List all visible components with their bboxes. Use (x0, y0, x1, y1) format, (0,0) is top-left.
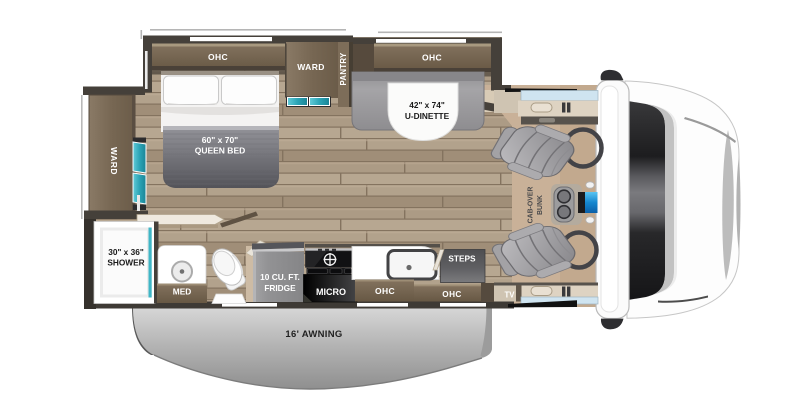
svg-text:OHC: OHC (375, 286, 395, 296)
svg-text:MICRO: MICRO (316, 287, 346, 297)
svg-text:MED: MED (173, 287, 191, 297)
svg-text:30" x 36": 30" x 36" (108, 247, 144, 257)
svg-text:PANTRY: PANTRY (339, 52, 348, 85)
svg-text:CAB-OVER: CAB-OVER (528, 187, 535, 224)
svg-text:OHC: OHC (208, 52, 228, 62)
svg-text:FRIDGE: FRIDGE (264, 283, 296, 293)
svg-text:STEPS: STEPS (448, 254, 476, 264)
svg-text:16' AWNING: 16' AWNING (285, 329, 342, 340)
svg-text:BUNK: BUNK (537, 195, 544, 215)
svg-text:OHC: OHC (442, 290, 461, 299)
svg-text:U-DINETTE: U-DINETTE (405, 111, 450, 121)
svg-text:10 CU. FT.: 10 CU. FT. (260, 272, 300, 282)
svg-text:WARD: WARD (109, 147, 119, 175)
svg-text:42" x 74": 42" x 74" (409, 100, 445, 110)
svg-text:TV: TV (505, 291, 516, 300)
svg-text:WARD: WARD (297, 62, 325, 72)
svg-text:QUEEN BED: QUEEN BED (195, 146, 246, 156)
svg-text:SHOWER: SHOWER (107, 258, 144, 268)
svg-text:OHC: OHC (422, 53, 442, 63)
svg-text:60" x 70": 60" x 70" (202, 135, 238, 145)
